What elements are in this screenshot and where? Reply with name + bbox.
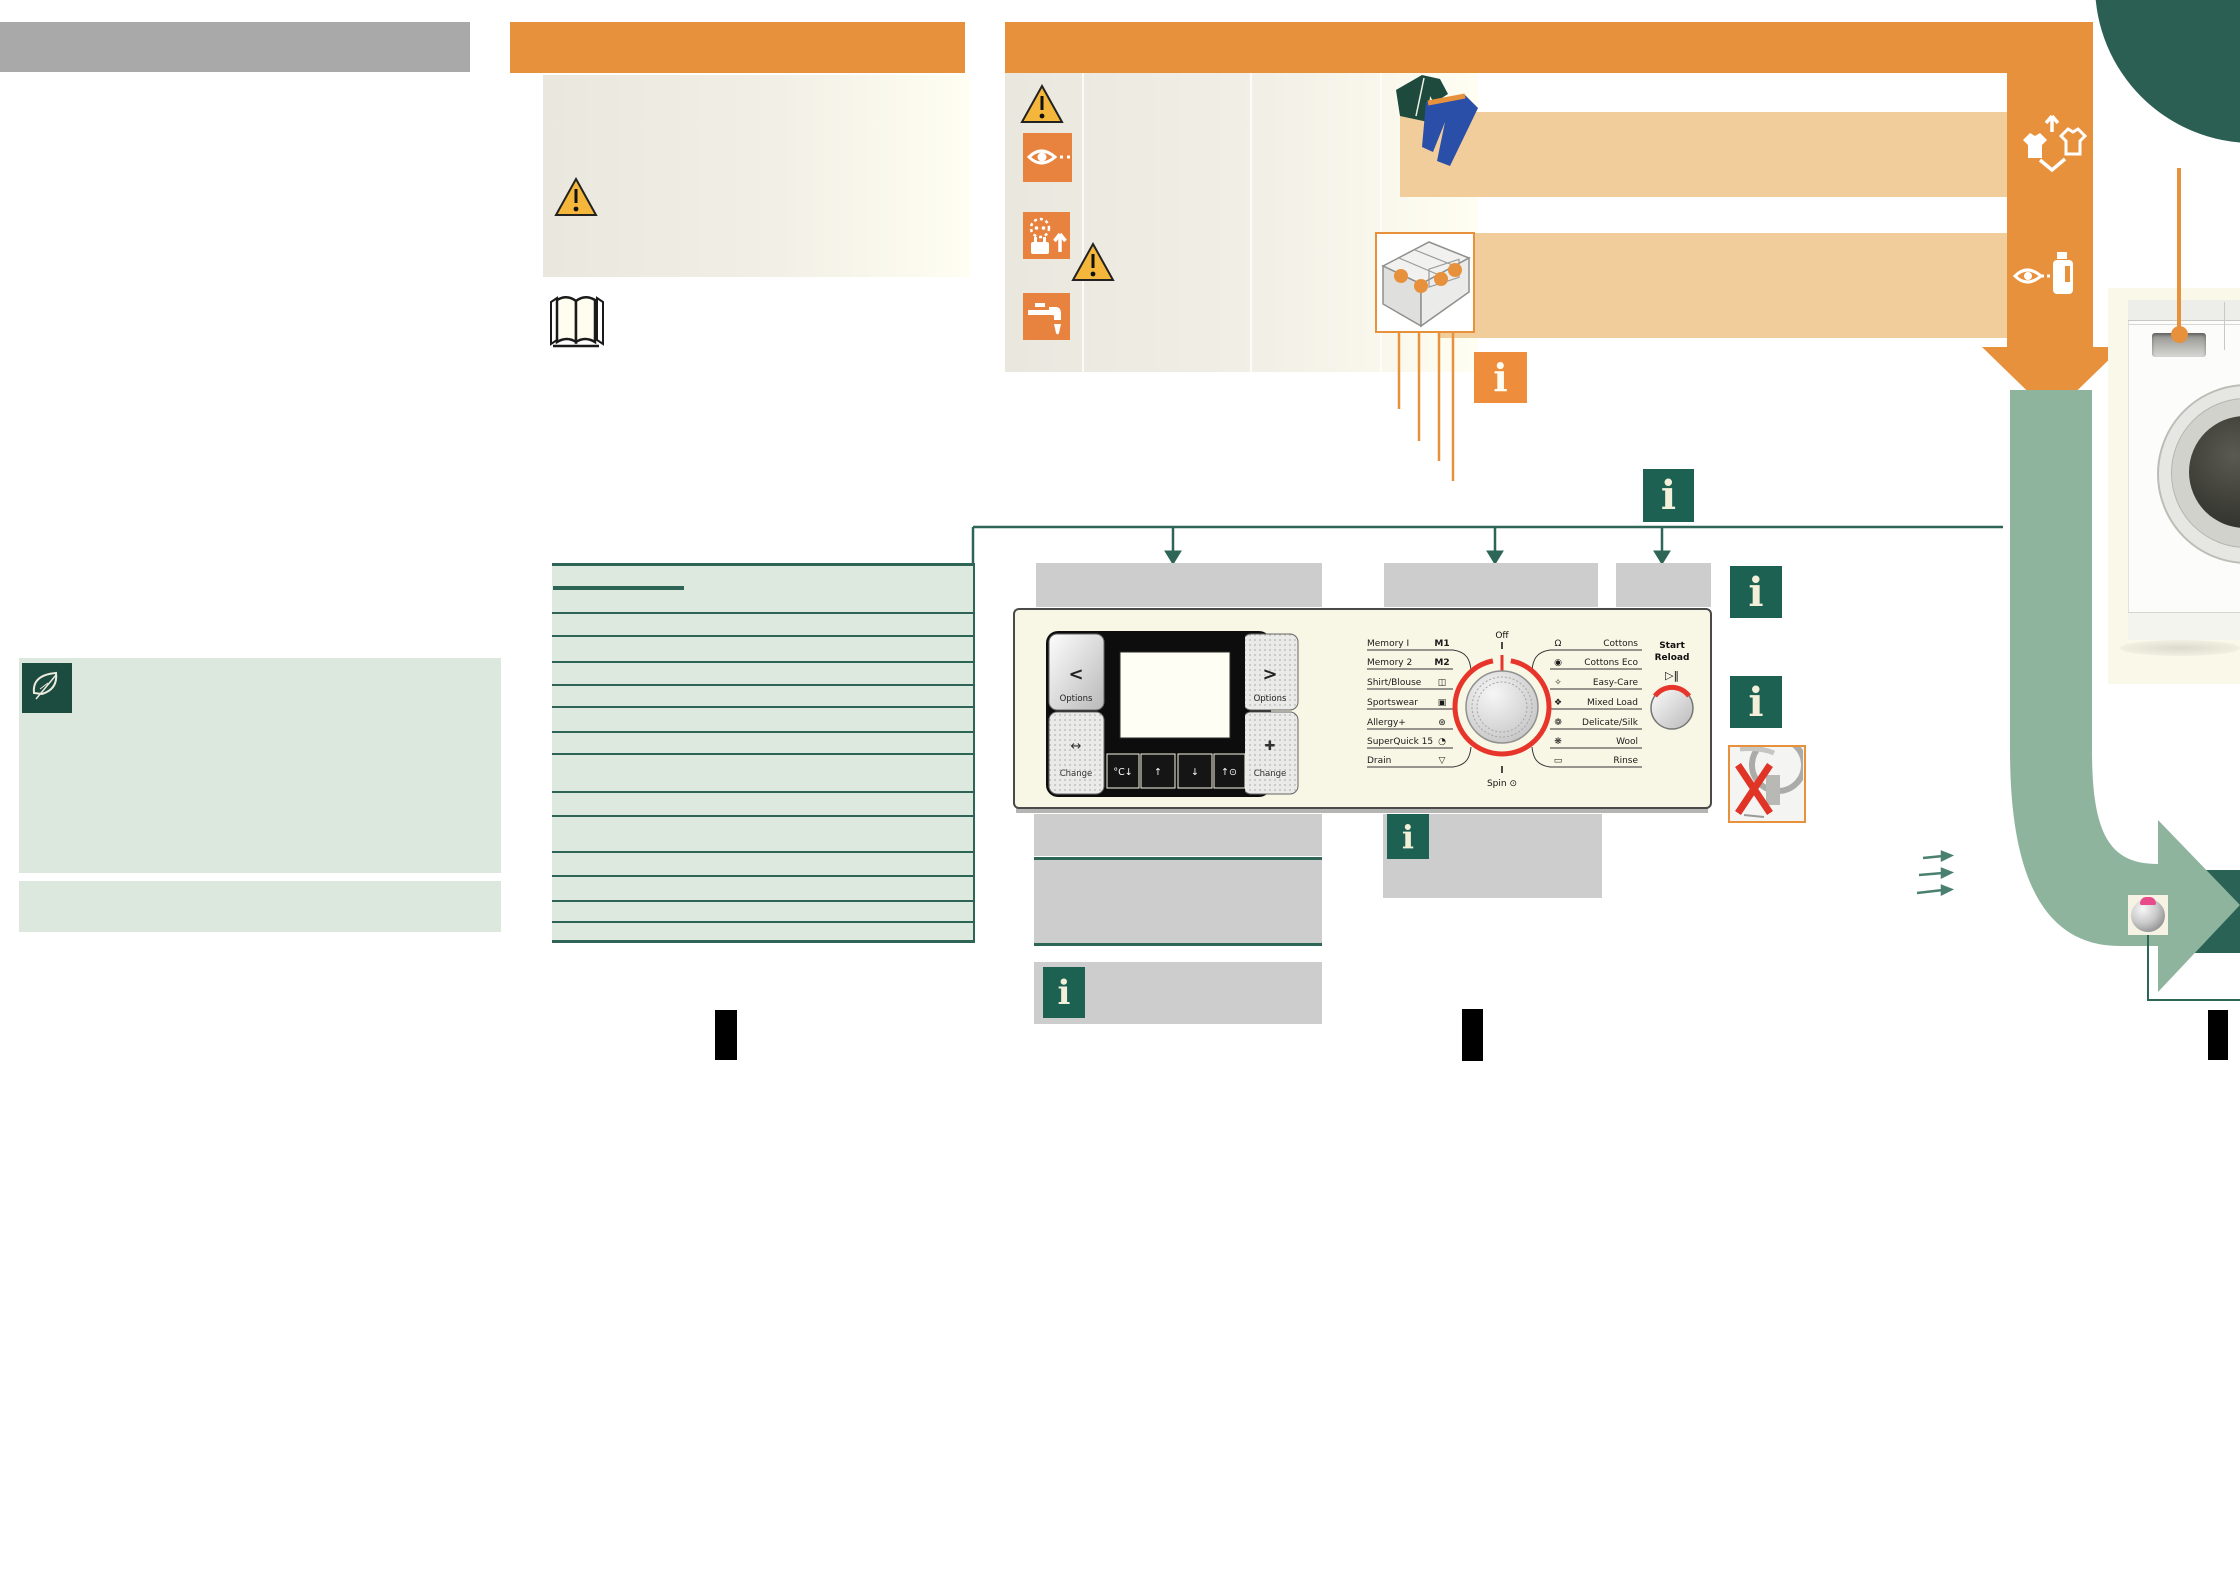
program-label: SuperQuick 15 bbox=[1367, 737, 1433, 747]
spin-key-label: ↑⊙ bbox=[1221, 767, 1237, 778]
start-pause-glyph: ▷‖ bbox=[1665, 669, 1679, 682]
eco-note-bar bbox=[19, 881, 501, 932]
reload-label: Reload bbox=[1655, 653, 1690, 663]
program-icon: ❁ bbox=[1554, 718, 1562, 728]
options-left-label: Options bbox=[1060, 694, 1093, 704]
water-tap-icon bbox=[1023, 293, 1070, 340]
change-right-label: Change bbox=[1254, 769, 1287, 779]
program-label: Easy-Care bbox=[1593, 678, 1639, 688]
options-right-label: Options bbox=[1254, 694, 1287, 704]
chevron-right-icon: > bbox=[1262, 664, 1277, 685]
control-panel-illustration: < Options ↔ Change > Options ✚ Change °C… bbox=[1013, 608, 1713, 810]
program-label: Shirt/Blouse bbox=[1367, 678, 1422, 688]
table-row-line bbox=[552, 791, 973, 793]
table-row-line bbox=[552, 753, 973, 755]
program-icon: ◉ bbox=[1554, 658, 1562, 668]
washing-machine-image bbox=[2108, 288, 2240, 684]
dosing-ball-image bbox=[2128, 895, 2168, 935]
program-icon: ✧ bbox=[1554, 678, 1562, 688]
label-box bbox=[1616, 563, 1711, 607]
program-icon: ▽ bbox=[1439, 756, 1446, 766]
info-icon: i bbox=[1730, 676, 1782, 728]
program-label: Memory I bbox=[1367, 639, 1409, 649]
info-icon: i bbox=[1043, 967, 1085, 1018]
table-row-line bbox=[552, 612, 973, 614]
program-icon: ◫ bbox=[1438, 678, 1447, 688]
table-row-line bbox=[552, 815, 973, 817]
table-row-line bbox=[552, 731, 973, 733]
chevron-left-icon: < bbox=[1068, 664, 1083, 685]
leaf-icon bbox=[22, 663, 72, 713]
program-icon: Ω bbox=[1555, 639, 1562, 649]
temp-key-label: °C↓ bbox=[1113, 767, 1132, 778]
program-label: Allergy+ bbox=[1367, 718, 1406, 728]
program-icon: ❖ bbox=[1554, 698, 1562, 708]
info-icon: i bbox=[1643, 469, 1694, 522]
page-marker bbox=[2208, 1010, 2228, 1060]
panel-separator bbox=[1250, 73, 1252, 372]
change-left-icon: ↔ bbox=[1071, 739, 1082, 754]
divider-line bbox=[1034, 943, 1322, 946]
eco-note-box bbox=[19, 658, 501, 873]
display-screen bbox=[1120, 652, 1230, 738]
laundry-clothes-image bbox=[1388, 72, 1483, 172]
page-marker bbox=[715, 1010, 737, 1060]
program-icon: ◔ bbox=[1438, 737, 1446, 747]
program-label: Drain bbox=[1367, 756, 1391, 766]
program-table bbox=[552, 563, 975, 943]
program-label: Sportswear bbox=[1367, 698, 1418, 708]
table-row-line bbox=[552, 661, 973, 663]
label-box bbox=[1034, 814, 1322, 856]
program-icon: ❋ bbox=[1554, 737, 1562, 747]
program-icon: ▭ bbox=[1554, 756, 1563, 766]
triple-arrow-icon bbox=[1915, 848, 1960, 903]
info-glyph: i bbox=[1748, 679, 1763, 726]
program-label: Rinse bbox=[1613, 756, 1638, 766]
program-label: Mixed Load bbox=[1587, 698, 1638, 708]
spin-label: Spin ⊙ bbox=[1487, 779, 1517, 789]
table-title-underline bbox=[553, 586, 684, 590]
info-icon: i bbox=[1474, 352, 1527, 403]
column2-header-bar bbox=[510, 22, 965, 73]
table-row-line bbox=[552, 921, 973, 923]
warning-triangle-icon bbox=[1020, 83, 1064, 125]
table-row-line bbox=[552, 706, 973, 708]
info-icon: i bbox=[1730, 566, 1782, 618]
column3-header-bar bbox=[1005, 22, 2007, 73]
column1-header-bar bbox=[0, 22, 470, 72]
program-label: Wool bbox=[1616, 737, 1638, 747]
table-row-line bbox=[552, 635, 973, 637]
detergent-drawer-image bbox=[1375, 232, 1475, 333]
power-plug-icon bbox=[1023, 212, 1070, 259]
label-box bbox=[1384, 563, 1598, 607]
tan-band-1 bbox=[1400, 112, 2007, 197]
up-key-label: ↑ bbox=[1154, 767, 1162, 778]
program-label: Cottons Eco bbox=[1584, 658, 1638, 668]
info-glyph: i bbox=[1493, 355, 1507, 400]
info-glyph: i bbox=[1748, 569, 1763, 616]
program-icon: ▣ bbox=[1438, 698, 1447, 708]
info-icon: i bbox=[1387, 814, 1429, 859]
crossed-out-image bbox=[1728, 745, 1806, 823]
drawer-callout-lines bbox=[1390, 333, 1470, 493]
tan-band-2 bbox=[1440, 233, 2007, 338]
start-label: Start bbox=[1659, 641, 1685, 651]
observe-eye-icon bbox=[1023, 133, 1072, 182]
warning-triangle-icon bbox=[1071, 241, 1115, 283]
table-row-line bbox=[552, 875, 973, 877]
program-icon: ⊛ bbox=[1438, 718, 1446, 728]
change-right-icon: ✚ bbox=[1265, 739, 1276, 754]
program-label: Memory 2 bbox=[1367, 658, 1412, 668]
table-row-line bbox=[552, 684, 973, 686]
machine-callout-line bbox=[2177, 168, 2181, 328]
info-glyph: i bbox=[1661, 472, 1676, 519]
down-key-label: ↓ bbox=[1191, 767, 1199, 778]
program-icon: M1 bbox=[1434, 639, 1449, 649]
info-glyph: i bbox=[1402, 818, 1414, 856]
program-icon: M2 bbox=[1434, 658, 1449, 668]
table-row-line bbox=[552, 900, 973, 902]
panel-separator bbox=[1082, 73, 1084, 372]
ball-callout-line bbox=[2140, 930, 2240, 1005]
change-left-label: Change bbox=[1060, 769, 1093, 779]
machine-callout-dot bbox=[2171, 326, 2188, 343]
table-row-line bbox=[552, 851, 973, 853]
warning-triangle-icon bbox=[554, 176, 598, 218]
program-label: Cottons bbox=[1603, 639, 1638, 649]
off-label: Off bbox=[1495, 631, 1509, 641]
safety-panel bbox=[543, 75, 970, 277]
orange-flow-arrow bbox=[1975, 20, 2130, 420]
label-box bbox=[1036, 563, 1322, 607]
manual-page: i bbox=[0, 0, 2240, 1590]
open-book-icon bbox=[543, 292, 611, 350]
info-glyph: i bbox=[1058, 973, 1071, 1013]
program-label: Delicate/Silk bbox=[1582, 718, 1639, 728]
page-marker bbox=[1462, 1009, 1483, 1061]
label-box bbox=[1034, 860, 1322, 943]
